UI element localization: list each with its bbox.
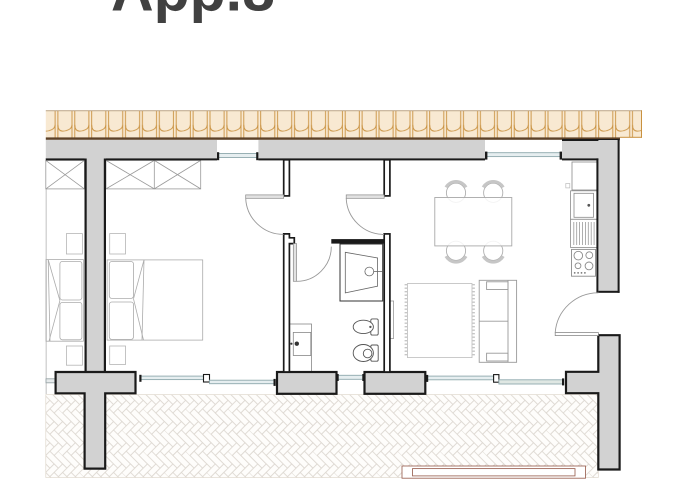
svg-text:App.8: App.8 [111, 0, 275, 24]
